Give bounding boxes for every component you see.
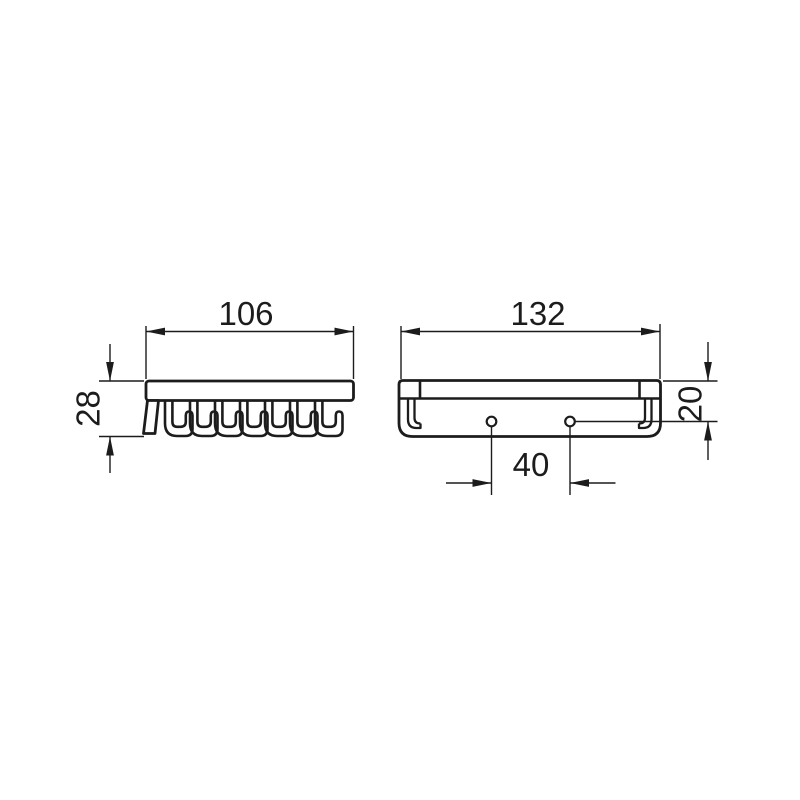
wire-hook [190,401,218,437]
side-view-end-wire [144,401,159,434]
front-view-body [399,381,661,437]
arrowhead-up [106,437,114,456]
arrowhead-right [641,328,660,336]
wire-hook [240,401,268,437]
arrowhead-left [146,328,165,336]
arrowhead-down [106,362,114,381]
side-view-rail [146,381,354,401]
dimension-text-28: 28 [70,390,107,427]
wire-hook [165,401,193,437]
dimension-132: 132 [401,295,660,379]
technical-drawing: 106 28 132 20 [0,0,800,800]
mount-hole-left [487,417,497,427]
arrowhead-left [401,328,420,336]
dimension-text-40: 40 [513,446,550,483]
arrowhead-right [335,328,354,336]
side-view [144,381,354,436]
dimension-106: 106 [146,295,354,379]
arrowhead-right [473,479,492,487]
dimension-28: 28 [70,344,145,473]
drawing-canvas: 106 28 132 20 [0,0,800,800]
wire-hook [290,401,318,437]
dimension-text-106: 106 [218,295,273,332]
wire-hook [315,401,343,437]
wire-hook [215,401,243,437]
arrowhead-up [704,422,712,441]
dimension-text-132: 132 [510,295,565,332]
side-view-hooks [165,401,343,437]
dimension-text-20: 20 [672,386,709,423]
arrowhead-left [570,479,589,487]
arrowhead-down [704,362,712,381]
mount-hole-right [565,417,575,427]
front-view [399,381,661,437]
wire-hook [265,401,293,437]
